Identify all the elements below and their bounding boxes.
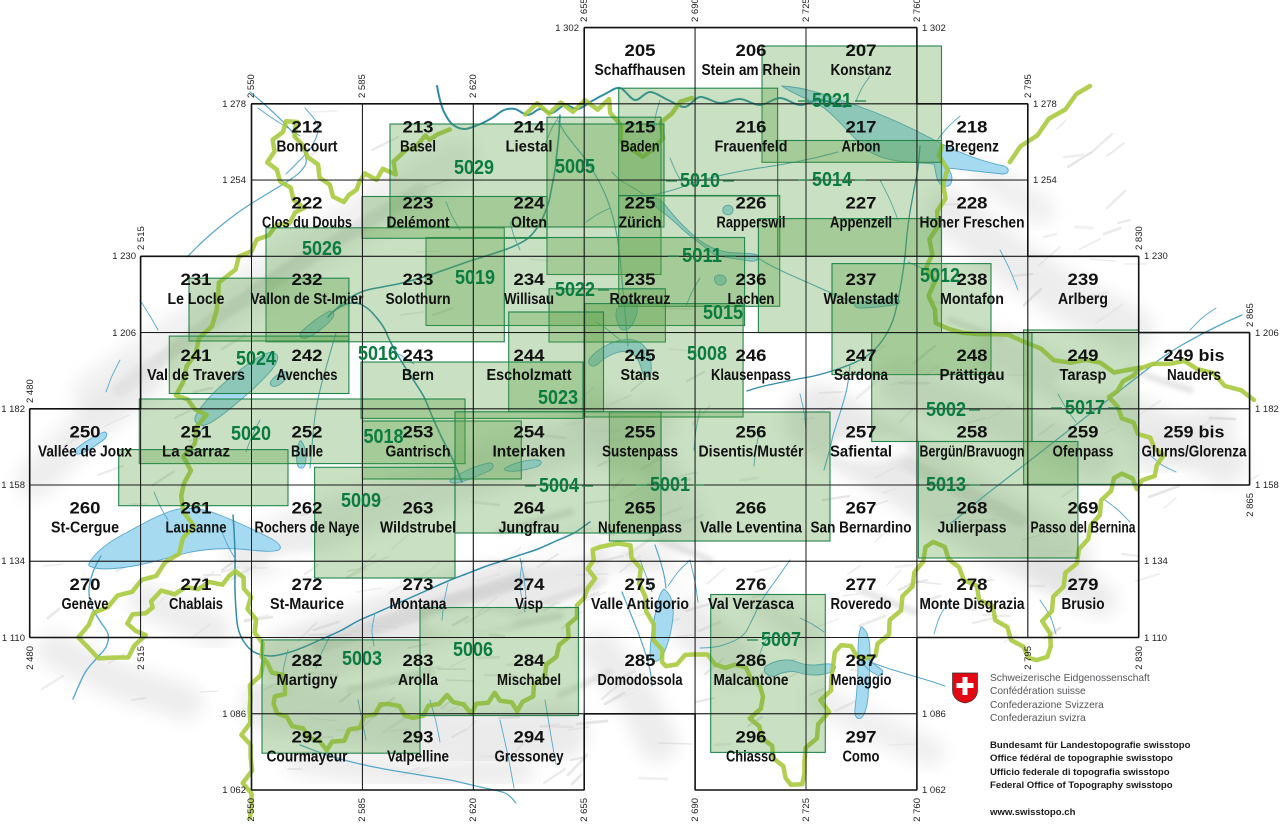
svg-text:2 865: 2 865: [1245, 493, 1256, 517]
svg-text:Vallon de St-Imier: Vallon de St-Imier: [251, 291, 364, 308]
svg-text:205: 205: [625, 42, 656, 60]
svg-text:Walenstadt: Walenstadt: [824, 291, 900, 308]
svg-text:293: 293: [403, 728, 434, 746]
svg-text:2 585: 2 585: [357, 74, 368, 98]
svg-text:237: 237: [846, 271, 877, 289]
svg-text:1 182: 1 182: [1, 404, 25, 415]
svg-text:287: 287: [846, 652, 877, 670]
svg-text:1 278: 1 278: [222, 99, 246, 110]
svg-text:284: 284: [514, 652, 546, 670]
svg-text:5007: 5007: [761, 629, 801, 651]
svg-text:268: 268: [957, 500, 988, 518]
svg-text:249 bis: 249 bis: [1164, 347, 1225, 365]
svg-text:235: 235: [625, 271, 656, 289]
svg-text:238: 238: [957, 271, 988, 289]
svg-text:1 302: 1 302: [555, 23, 579, 34]
svg-text:1 206: 1 206: [112, 328, 136, 339]
svg-text:2 690: 2 690: [690, 0, 701, 22]
svg-text:1 110: 1 110: [2, 633, 25, 644]
svg-text:227: 227: [846, 195, 877, 213]
svg-text:1 158: 1 158: [1255, 480, 1279, 491]
svg-text:La Sarraz: La Sarraz: [162, 443, 230, 460]
svg-text:278: 278: [957, 576, 988, 594]
svg-text:2 795: 2 795: [1023, 74, 1034, 98]
svg-text:233: 233: [403, 271, 434, 289]
svg-text:5016: 5016: [358, 343, 398, 365]
svg-text:285: 285: [625, 652, 656, 670]
svg-text:Ufficio federale di topografia: Ufficio federale di topografia swisstopo: [990, 767, 1170, 778]
svg-text:Brusio: Brusio: [1062, 596, 1105, 613]
svg-text:Passo del Bernina: Passo del Bernina: [1031, 520, 1136, 537]
svg-text:Bern: Bern: [402, 367, 434, 384]
svg-text:5012: 5012: [920, 265, 960, 287]
svg-text:232: 232: [292, 271, 323, 289]
svg-text:5011: 5011: [682, 245, 722, 267]
svg-text:244: 244: [514, 347, 546, 365]
svg-text:Stein am Rhein: Stein am Rhein: [702, 62, 801, 79]
svg-text:2 830: 2 830: [1134, 226, 1145, 250]
svg-text:Arolla: Arolla: [398, 672, 438, 689]
svg-text:217: 217: [846, 118, 877, 136]
svg-text:5005: 5005: [555, 156, 595, 178]
svg-text:275: 275: [625, 576, 656, 594]
svg-text:Genève: Genève: [62, 596, 109, 613]
svg-text:5009: 5009: [341, 490, 381, 512]
svg-text:Montana: Montana: [390, 596, 447, 613]
svg-text:Tarasp: Tarasp: [1060, 367, 1107, 384]
svg-text:Basel: Basel: [400, 138, 436, 155]
svg-text:1 278: 1 278: [1033, 99, 1057, 110]
svg-text:5018: 5018: [364, 426, 404, 448]
svg-text:277: 277: [846, 576, 877, 594]
svg-text:Val Verzasca: Val Verzasca: [708, 596, 794, 613]
svg-text:5022: 5022: [555, 279, 595, 301]
svg-text:242: 242: [292, 347, 323, 365]
svg-text:Montafon: Montafon: [940, 291, 1004, 308]
svg-text:296: 296: [736, 728, 767, 746]
svg-text:Nufenenpass: Nufenenpass: [598, 520, 682, 537]
svg-text:Interlaken: Interlaken: [493, 443, 566, 460]
svg-text:5020: 5020: [231, 423, 271, 445]
svg-text:2 515: 2 515: [136, 646, 147, 670]
svg-text:5006: 5006: [453, 639, 493, 661]
svg-text:241: 241: [181, 347, 212, 365]
svg-text:214: 214: [514, 118, 546, 136]
svg-text:297: 297: [846, 728, 877, 746]
svg-text:264: 264: [514, 500, 546, 518]
svg-text:2 760: 2 760: [912, 0, 923, 22]
svg-text:Klausenpass: Klausenpass: [711, 367, 791, 384]
svg-text:Clos du Doubs: Clos du Doubs: [262, 215, 352, 232]
svg-text:Zürich: Zürich: [619, 215, 662, 232]
svg-text:234: 234: [514, 271, 546, 289]
svg-text:5004: 5004: [539, 475, 580, 497]
svg-text:294: 294: [514, 728, 546, 746]
svg-text:Federal Office of Topography s: Federal Office of Topography swisstopo: [990, 780, 1173, 791]
svg-text:Malcantone: Malcantone: [714, 672, 789, 689]
svg-text:Julierpass: Julierpass: [938, 520, 1007, 537]
svg-text:2 480: 2 480: [25, 646, 36, 670]
svg-text:224: 224: [514, 195, 546, 213]
svg-text:276: 276: [736, 576, 767, 594]
svg-text:Nauders: Nauders: [1167, 367, 1221, 384]
svg-text:207: 207: [846, 42, 877, 60]
svg-text:Glurns/Glorenza: Glurns/Glorenza: [1142, 443, 1247, 460]
svg-text:249: 249: [1068, 347, 1099, 365]
svg-text:Mischabel: Mischabel: [497, 672, 561, 689]
svg-text:231: 231: [181, 271, 212, 289]
svg-text:2 795: 2 795: [1023, 646, 1034, 670]
svg-text:Valle Leventina: Valle Leventina: [700, 520, 802, 537]
svg-text:www.swisstopo.ch: www.swisstopo.ch: [989, 807, 1076, 818]
svg-text:282: 282: [292, 652, 323, 670]
svg-text:Boncourt: Boncourt: [277, 138, 339, 155]
svg-text:San Bernardino: San Bernardino: [811, 520, 912, 537]
svg-text:292: 292: [292, 728, 323, 746]
svg-text:1 302: 1 302: [922, 23, 946, 34]
svg-text:1 182: 1 182: [1255, 404, 1279, 415]
svg-text:Confederazione Svizzera: Confederazione Svizzera: [990, 700, 1104, 711]
svg-text:2 655: 2 655: [579, 0, 590, 22]
svg-text:223: 223: [403, 195, 434, 213]
svg-text:279: 279: [1068, 576, 1099, 594]
svg-text:213: 213: [403, 118, 434, 136]
svg-text:2 830: 2 830: [1134, 646, 1145, 670]
svg-text:260: 260: [70, 500, 101, 518]
svg-text:Konstanz: Konstanz: [831, 62, 892, 79]
svg-text:Monte Disgrazia: Monte Disgrazia: [920, 596, 1025, 613]
svg-text:215: 215: [625, 118, 656, 136]
svg-text:258: 258: [957, 423, 988, 441]
svg-text:Visp: Visp: [515, 596, 543, 613]
svg-text:206: 206: [736, 42, 767, 60]
svg-text:Wildstrubel: Wildstrubel: [380, 520, 456, 537]
svg-text:Solothurn: Solothurn: [386, 291, 451, 308]
svg-text:270: 270: [70, 576, 101, 594]
svg-text:Bulle: Bulle: [291, 443, 323, 460]
svg-text:Avenches: Avenches: [277, 367, 338, 384]
svg-text:5026: 5026: [302, 238, 342, 260]
svg-text:Schweizerische Eidgenossenscha: Schweizerische Eidgenossenschaft: [990, 673, 1150, 684]
svg-text:Chablais: Chablais: [169, 596, 223, 613]
svg-text:Stans: Stans: [621, 367, 660, 384]
svg-text:2 725: 2 725: [801, 798, 812, 822]
svg-text:Rochers de Naye: Rochers de Naye: [255, 520, 360, 537]
svg-text:Val de Travers: Val de Travers: [147, 367, 245, 384]
svg-text:Le Locle: Le Locle: [168, 291, 225, 308]
svg-text:1 134: 1 134: [1144, 556, 1168, 567]
svg-text:5015: 5015: [703, 302, 743, 324]
svg-text:Arbon: Arbon: [842, 138, 881, 155]
svg-text:236: 236: [736, 271, 767, 289]
svg-text:2 585: 2 585: [357, 798, 368, 822]
svg-text:Bundesamt für Landestopografie: Bundesamt für Landestopografie swisstopo: [990, 740, 1191, 751]
svg-text:1 206: 1 206: [1255, 328, 1279, 339]
svg-text:283: 283: [403, 652, 434, 670]
svg-text:5008: 5008: [687, 343, 727, 365]
svg-text:2 865: 2 865: [1245, 303, 1256, 327]
svg-text:257: 257: [846, 423, 877, 441]
svg-text:Confederaziun svizra: Confederaziun svizra: [990, 713, 1086, 724]
svg-text:Roveredo: Roveredo: [831, 596, 892, 613]
svg-text:259: 259: [1068, 423, 1099, 441]
svg-text:5017: 5017: [1065, 397, 1105, 419]
svg-text:259 bis: 259 bis: [1164, 423, 1225, 441]
svg-text:Rotkreuz: Rotkreuz: [610, 291, 671, 308]
svg-text:Delémont: Delémont: [387, 215, 451, 232]
svg-text:251: 251: [181, 423, 212, 441]
svg-text:265: 265: [625, 500, 656, 518]
svg-text:247: 247: [846, 347, 877, 365]
svg-text:5010: 5010: [680, 170, 720, 192]
svg-text:239: 239: [1068, 271, 1099, 289]
svg-text:Liestal: Liestal: [506, 138, 553, 155]
svg-text:2 690: 2 690: [690, 798, 701, 822]
svg-text:1 062: 1 062: [222, 785, 246, 796]
svg-text:248: 248: [957, 347, 988, 365]
svg-text:266: 266: [736, 500, 767, 518]
svg-text:Bregenz: Bregenz: [945, 138, 999, 155]
svg-text:2 620: 2 620: [468, 798, 479, 822]
svg-text:1 062: 1 062: [922, 785, 946, 796]
svg-text:218: 218: [957, 118, 988, 136]
svg-text:Menaggio: Menaggio: [831, 672, 892, 689]
svg-text:5002: 5002: [926, 399, 966, 421]
svg-text:262: 262: [292, 500, 323, 518]
svg-text:St-Maurice: St-Maurice: [270, 596, 344, 613]
svg-text:Arlberg: Arlberg: [1058, 291, 1108, 308]
svg-text:Gressoney: Gressoney: [495, 748, 564, 765]
svg-text:Prättigau: Prättigau: [940, 367, 1005, 384]
svg-text:263: 263: [403, 500, 434, 518]
svg-text:246: 246: [736, 347, 767, 365]
svg-text:5014: 5014: [812, 169, 853, 191]
svg-text:2 515: 2 515: [136, 226, 147, 250]
svg-text:5021: 5021: [812, 90, 852, 112]
svg-text:2 760: 2 760: [912, 798, 923, 822]
svg-text:Frauenfeld: Frauenfeld: [715, 138, 788, 155]
svg-text:261: 261: [181, 500, 212, 518]
svg-text:Vallée de Joux: Vallée de Joux: [38, 443, 132, 460]
svg-text:1 230: 1 230: [112, 251, 136, 262]
svg-text:1 134: 1 134: [1, 556, 25, 567]
svg-text:2 655: 2 655: [579, 798, 590, 822]
svg-text:Jungfrau: Jungfrau: [499, 520, 560, 537]
svg-text:272: 272: [292, 576, 323, 594]
svg-text:Safiental: Safiental: [830, 443, 892, 460]
svg-text:5013: 5013: [926, 474, 966, 496]
svg-text:1 254: 1 254: [222, 175, 246, 186]
svg-text:1 158: 1 158: [1, 480, 25, 491]
svg-text:274: 274: [514, 576, 546, 594]
svg-text:256: 256: [736, 423, 767, 441]
svg-text:Valle Antigorio: Valle Antigorio: [591, 596, 689, 613]
svg-text:Office fédéral de topographie: Office fédéral de topographie swisstopo: [990, 753, 1173, 764]
svg-text:Valpelline: Valpelline: [387, 748, 449, 765]
svg-text:Lausanne: Lausanne: [166, 520, 227, 537]
svg-text:2 550: 2 550: [246, 74, 257, 98]
svg-text:254: 254: [514, 423, 546, 441]
svg-text:Sardona: Sardona: [834, 367, 888, 384]
svg-text:Domodossola: Domodossola: [598, 672, 683, 689]
svg-text:5001: 5001: [650, 474, 690, 496]
svg-text:5019: 5019: [455, 267, 495, 289]
svg-text:250: 250: [70, 423, 101, 441]
svg-text:Olten: Olten: [511, 215, 547, 232]
svg-text:St-Cergue: St-Cergue: [51, 520, 119, 537]
svg-text:2 480: 2 480: [25, 379, 36, 403]
svg-text:Escholzmatt: Escholzmatt: [487, 367, 573, 384]
svg-text:212: 212: [292, 118, 323, 136]
svg-text:Chiasso: Chiasso: [726, 748, 776, 765]
svg-text:1 254: 1 254: [1033, 175, 1057, 186]
svg-text:2 620: 2 620: [468, 74, 479, 98]
svg-text:Courmayeur: Courmayeur: [267, 748, 348, 765]
svg-text:Sustenpass: Sustenpass: [602, 443, 678, 460]
svg-text:226: 226: [736, 195, 767, 213]
svg-text:Ofenpass: Ofenpass: [1053, 443, 1114, 460]
svg-text:1 110: 1 110: [1144, 633, 1167, 644]
svg-text:2 550: 2 550: [246, 798, 257, 822]
svg-text:216: 216: [736, 118, 767, 136]
svg-text:271: 271: [181, 576, 212, 594]
svg-text:1 086: 1 086: [222, 709, 246, 720]
svg-text:Bergün/Bravuogn: Bergün/Bravuogn: [920, 443, 1025, 460]
svg-text:269: 269: [1068, 500, 1099, 518]
svg-text:5023: 5023: [538, 387, 578, 409]
svg-text:255: 255: [625, 423, 656, 441]
svg-text:245: 245: [625, 347, 656, 365]
svg-text:1 086: 1 086: [922, 709, 946, 720]
svg-text:5024: 5024: [236, 348, 277, 370]
svg-text:Appenzell: Appenzell: [830, 215, 892, 232]
svg-text:Willisau: Willisau: [504, 291, 554, 308]
svg-text:Disentis/Mustér: Disentis/Mustér: [699, 443, 804, 460]
svg-text:286: 286: [736, 652, 767, 670]
svg-text:Confédération suisse: Confédération suisse: [990, 686, 1086, 697]
svg-text:Hoher Freschen: Hoher Freschen: [920, 215, 1025, 232]
svg-text:273: 273: [403, 576, 434, 594]
svg-text:253: 253: [403, 423, 434, 441]
svg-text:2 725: 2 725: [801, 0, 812, 22]
svg-text:Schaffhausen: Schaffhausen: [595, 62, 686, 79]
svg-text:5003: 5003: [342, 648, 382, 670]
svg-text:222: 222: [292, 195, 323, 213]
svg-text:Como: Como: [843, 748, 880, 765]
svg-text:228: 228: [957, 195, 988, 213]
svg-text:5029: 5029: [454, 157, 494, 179]
svg-text:267: 267: [846, 500, 877, 518]
svg-text:Rapperswil: Rapperswil: [717, 215, 786, 232]
svg-text:Martigny: Martigny: [277, 672, 338, 689]
svg-text:252: 252: [292, 423, 323, 441]
svg-text:Baden: Baden: [621, 138, 660, 155]
svg-text:225: 225: [625, 195, 656, 213]
svg-text:1 230: 1 230: [1144, 251, 1168, 262]
svg-text:243: 243: [403, 347, 434, 365]
